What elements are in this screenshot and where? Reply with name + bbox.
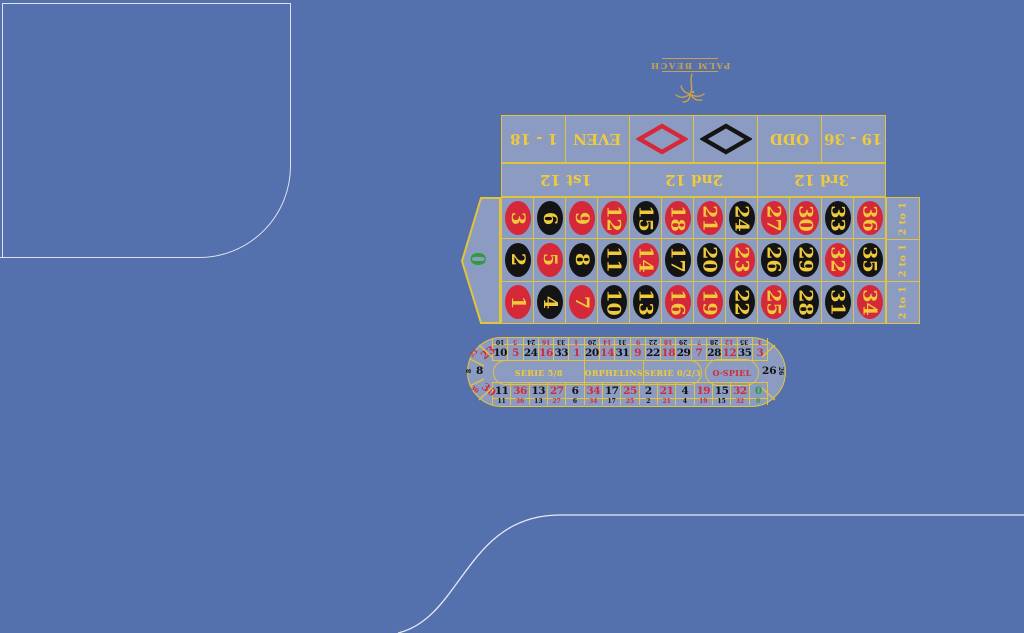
- tiny-number-13: 13: [534, 399, 542, 405]
- bet-2nd-12-label: 2nd 12: [665, 171, 723, 189]
- black-diamond-icon: [700, 123, 752, 155]
- racetrack-cell-14[interactable]: 1414: [600, 338, 615, 361]
- number-cell-30[interactable]: 30: [789, 197, 822, 239]
- number-cell-14[interactable]: 14: [629, 238, 662, 281]
- bet-red[interactable]: [629, 115, 694, 163]
- racetrack-tiny-10: 10: [493, 338, 507, 345]
- racetrack-number-27: 27: [548, 383, 565, 398]
- outside-bets-row: 1 - 18 EVEN ODD 19 - 36: [501, 115, 886, 163]
- red-oval-5: 5: [537, 243, 563, 277]
- number-cell-27[interactable]: 27: [757, 197, 790, 239]
- black-oval-22: 22: [729, 285, 755, 319]
- number-cell-23[interactable]: 23: [725, 238, 758, 281]
- table-edge-line: [0, 257, 3, 258]
- section-o-spiel[interactable]: O·SPIEL: [705, 359, 759, 386]
- number-1: 1: [508, 296, 527, 309]
- racetrack-tiny-17: 17: [603, 398, 620, 405]
- red-oval-36: 36: [857, 201, 883, 235]
- racetrack-cell-27[interactable]: 2727: [548, 382, 566, 405]
- bet-1-18[interactable]: 1 - 18: [501, 115, 566, 163]
- tiny-number-20: 20: [588, 338, 596, 344]
- tiny-number-10: 10: [496, 338, 504, 344]
- black-oval-11: 11: [601, 243, 627, 277]
- racetrack-tiny-26: 26: [777, 367, 783, 375]
- number-26: 26: [764, 247, 783, 273]
- racetrack-tiny-6: 6: [566, 398, 583, 405]
- casino-logo: PALM BEACH: [648, 57, 732, 115]
- racetrack-number-2: 2: [640, 383, 657, 398]
- number-cell-6[interactable]: 6: [533, 197, 566, 239]
- tiny-number-7: 7: [697, 338, 701, 344]
- tiny-number-11: 11: [497, 399, 505, 405]
- racetrack-tiny-25: 25: [621, 398, 638, 405]
- bet-1-18-label: 1 - 18: [510, 130, 558, 148]
- section-serie-0-2-3[interactable]: SERIE 0/2/3: [643, 361, 701, 384]
- number-cell-31[interactable]: 31: [821, 281, 854, 324]
- racetrack-tiny-36: 36: [511, 398, 528, 405]
- racetrack-number-8[interactable]: 8: [476, 366, 483, 377]
- racetrack-cell-19[interactable]: 1919: [695, 382, 713, 405]
- racetrack-number-5: 5: [508, 345, 522, 360]
- racetrack-tiny-16: 16: [539, 338, 553, 345]
- number-cell-35[interactable]: 35: [853, 238, 886, 281]
- racetrack-number-0: 0: [750, 383, 767, 398]
- racetrack-tiny-20: 20: [585, 338, 599, 345]
- bet-19-36[interactable]: 19 - 36: [821, 115, 886, 163]
- zero-number: 0: [468, 252, 488, 266]
- black-oval-20: 20: [697, 243, 723, 277]
- bet-1st-12-label: 1st 12: [540, 171, 592, 189]
- section-serie-5-8-label: SERIE 5/8: [515, 368, 563, 378]
- racetrack-cell-21[interactable]: 2121: [658, 382, 676, 405]
- black-oval-26: 26: [761, 243, 787, 277]
- red-diamond-icon: [636, 123, 688, 155]
- racetrack-number-26[interactable]: 26: [762, 366, 777, 377]
- racetrack-tiny-3: 3: [753, 338, 767, 345]
- bet-2nd-12[interactable]: 2nd 12: [629, 163, 758, 197]
- number-32: 32: [828, 247, 847, 273]
- number-6: 6: [540, 212, 559, 225]
- number-cell-22[interactable]: 22: [725, 281, 758, 324]
- racetrack-number-20: 20: [585, 345, 599, 360]
- number-22: 22: [732, 289, 751, 315]
- racetrack: 1010552424161633331120201414313199222218…: [467, 337, 786, 407]
- tiny-number-9: 9: [636, 338, 640, 344]
- column-bet-label: 2 to 1: [898, 202, 909, 236]
- racetrack-number-6: 6: [566, 383, 583, 398]
- racetrack-tiny-9: 9: [631, 338, 645, 345]
- racetrack-tiny-19: 19: [695, 398, 712, 405]
- racetrack-tiny-22: 22: [646, 338, 660, 345]
- number-5: 5: [540, 253, 559, 266]
- column-bet-top[interactable]: 2 to 1: [886, 197, 920, 240]
- racetrack-number-29: 29: [676, 345, 690, 360]
- racetrack-cell-17[interactable]: 1717: [603, 382, 621, 405]
- racetrack-tiny-12: 12: [722, 338, 736, 345]
- tiny-number-18: 18: [664, 338, 672, 344]
- logo-rule-bottom: [662, 58, 718, 59]
- racetrack-cell-9[interactable]: 99: [631, 338, 646, 361]
- bet-even[interactable]: EVEN: [565, 115, 630, 163]
- tiny-number-19: 19: [699, 399, 707, 405]
- racetrack-cell-0[interactable]: 00: [750, 382, 768, 405]
- racetrack-tiny-34: 34: [585, 398, 602, 405]
- black-oval-33: 33: [825, 201, 851, 235]
- number-row-1: 258111417202326293235: [501, 239, 886, 281]
- racetrack-cell-29[interactable]: 2929: [676, 338, 691, 361]
- racetrack-number-12: 12: [722, 345, 736, 360]
- number-cell-19[interactable]: 19: [693, 281, 726, 324]
- red-oval-34: 34: [857, 285, 883, 319]
- racetrack-number-16: 16: [539, 345, 553, 360]
- black-oval-8: 8: [569, 243, 595, 277]
- number-21: 21: [700, 205, 719, 231]
- racetrack-cell-5[interactable]: 55: [508, 338, 523, 361]
- black-oval-29: 29: [793, 243, 819, 277]
- number-36: 36: [860, 205, 879, 231]
- tiny-number-25: 25: [626, 399, 634, 405]
- number-cell-29[interactable]: 29: [789, 238, 822, 281]
- number-13: 13: [636, 289, 655, 315]
- black-oval-6: 6: [537, 201, 563, 235]
- black-oval-4: 4: [537, 285, 563, 319]
- racetrack-cell-31[interactable]: 3131: [615, 338, 630, 361]
- racetrack-number-4: 4: [676, 383, 693, 398]
- tiny-number-33: 33: [557, 338, 565, 344]
- tiny-number-4: 4: [683, 399, 687, 405]
- tiny-number-28: 28: [710, 338, 718, 344]
- number-cell-10[interactable]: 10: [597, 281, 630, 324]
- number-15: 15: [636, 205, 655, 231]
- tiny-number-21: 21: [662, 399, 670, 405]
- tiny-number-16: 16: [542, 338, 550, 344]
- tiny-number-35: 35: [740, 338, 748, 344]
- number-cell-15[interactable]: 15: [629, 197, 662, 239]
- number-30: 30: [796, 205, 815, 231]
- number-cell-20[interactable]: 20: [693, 238, 726, 281]
- racetrack-tiny-7: 7: [692, 338, 706, 345]
- red-oval-27: 27: [761, 201, 787, 235]
- racetrack-number-19: 19: [695, 383, 712, 398]
- racetrack-cell-18[interactable]: 1818: [661, 338, 676, 361]
- number-cell-33[interactable]: 33: [821, 197, 854, 239]
- number-cell-26[interactable]: 26: [757, 238, 790, 281]
- racetrack-tiny-4: 4: [676, 398, 693, 405]
- number-cell-25[interactable]: 25: [757, 281, 790, 324]
- red-oval-30: 30: [793, 201, 819, 235]
- tiny-number-34: 34: [589, 399, 597, 405]
- racetrack-tiny-27: 27: [548, 398, 565, 405]
- racetrack-number-17: 17: [603, 383, 620, 398]
- racetrack-tiny-14: 14: [600, 338, 614, 345]
- casino-logo-flipped: PALM BEACH: [648, 57, 732, 115]
- racetrack-number-31: 31: [615, 345, 629, 360]
- section-orphelins-label: ORPHELINS: [585, 368, 643, 378]
- number-cell-1[interactable]: 1: [501, 281, 534, 324]
- logo-wordmark: PALM BEACH: [650, 60, 731, 70]
- bet-3rd-12-label: 3rd 12: [794, 171, 849, 189]
- black-oval-28: 28: [793, 285, 819, 319]
- red-oval-3: 3: [505, 201, 531, 235]
- racetrack-cell-3[interactable]: 33: [753, 338, 768, 361]
- number-cell-11[interactable]: 11: [597, 238, 630, 281]
- black-oval-24: 24: [729, 201, 755, 235]
- black-oval-35: 35: [857, 243, 883, 277]
- racetrack-tiny-18: 18: [661, 338, 675, 345]
- bet-black[interactable]: [693, 115, 758, 163]
- racetrack-number-18: 18: [661, 345, 675, 360]
- racetrack-number-1: 1: [569, 345, 583, 360]
- tiny-number-12: 12: [725, 338, 733, 344]
- section-orphelins[interactable]: ORPHELINS: [584, 361, 643, 384]
- column-bet-label: 2 to 1: [898, 244, 909, 278]
- racetrack-number-33: 33: [554, 345, 568, 360]
- number-9: 9: [572, 212, 591, 225]
- tiny-number-29: 29: [679, 338, 687, 344]
- tiny-number-2: 2: [646, 399, 650, 405]
- tiny-number-1: 1: [574, 338, 578, 344]
- racetrack-number-21: 21: [658, 383, 675, 398]
- black-oval-17: 17: [665, 243, 691, 277]
- tiny-number-15: 15: [717, 399, 725, 405]
- racetrack-tiny-1: 1: [569, 338, 583, 345]
- racetrack-cell-12[interactable]: 1212: [722, 338, 737, 361]
- number-3: 3: [508, 212, 527, 225]
- racetrack-tiny-35: 35: [738, 338, 752, 345]
- red-oval-1: 1: [505, 285, 531, 319]
- number-24: 24: [732, 205, 751, 231]
- number-23: 23: [732, 247, 751, 273]
- column-bet-middle[interactable]: 2 to 1: [886, 239, 920, 282]
- racetrack-cell-35[interactable]: 3535: [738, 338, 753, 361]
- racetrack-number-9: 9: [631, 345, 645, 360]
- number-cell-17[interactable]: 17: [661, 238, 694, 281]
- number-cell-3[interactable]: 3: [501, 197, 534, 239]
- racetrack-tiny-11: 11: [493, 398, 510, 405]
- racetrack-tiny-8: 8: [467, 369, 473, 373]
- red-oval-18: 18: [665, 201, 691, 235]
- racetrack-tiny-2: 2: [640, 398, 657, 405]
- number-cell-12[interactable]: 12: [597, 197, 630, 239]
- racetrack-cell-7[interactable]: 77: [692, 338, 707, 361]
- number-cell-16[interactable]: 16: [661, 281, 694, 324]
- red-oval-12: 12: [601, 201, 627, 235]
- number-16: 16: [668, 289, 687, 315]
- tiny-number-14: 14: [603, 338, 611, 344]
- logo-rule-top: [662, 71, 718, 72]
- tiny-number-5: 5: [513, 338, 517, 344]
- red-oval-16: 16: [665, 285, 691, 319]
- number-25: 25: [764, 289, 783, 315]
- racetrack-number-36: 36: [511, 383, 528, 398]
- black-oval-15: 15: [633, 201, 659, 235]
- tiny-number-0: 0: [756, 399, 760, 405]
- bet-3rd-12[interactable]: 3rd 12: [757, 163, 886, 197]
- number-8: 8: [572, 253, 591, 266]
- racetrack-cell-24[interactable]: 2424: [524, 338, 539, 361]
- number-cell-28[interactable]: 28: [789, 281, 822, 324]
- bet-odd[interactable]: ODD: [757, 115, 822, 163]
- black-oval-2: 2: [505, 243, 531, 277]
- racetrack-tiny-15: 15: [713, 398, 730, 405]
- tiny-number-32: 32: [736, 399, 744, 405]
- number-cell-32[interactable]: 32: [821, 238, 854, 281]
- racetrack-cell-2[interactable]: 22: [640, 382, 658, 405]
- racetrack-tiny-28: 28: [707, 338, 721, 345]
- number-10: 10: [604, 289, 623, 315]
- bet-1st-12[interactable]: 1st 12: [501, 163, 630, 197]
- number-11: 11: [604, 247, 623, 273]
- black-oval-10: 10: [601, 285, 627, 319]
- tiny-number-22: 22: [649, 338, 657, 344]
- racetrack-tiny-29: 29: [676, 338, 690, 345]
- number-33: 33: [828, 205, 847, 231]
- racetrack-tiny-32: 32: [731, 398, 748, 405]
- bet-19-36-label: 19 - 36: [824, 130, 882, 148]
- number-cell-2[interactable]: 2: [501, 238, 534, 281]
- racetrack-number-24: 24: [524, 345, 538, 360]
- racetrack-top-strip: 1010552424161633331120201414313199222218…: [492, 338, 768, 361]
- racetrack-tiny-33: 33: [554, 338, 568, 345]
- racetrack-center-sections: SERIE 5/8 ORPHELINS SERIE 0/2/3: [493, 360, 702, 385]
- racetrack-cell-25[interactable]: 2525: [621, 382, 639, 405]
- number-2: 2: [508, 253, 527, 266]
- racetrack-number-7: 7: [692, 345, 706, 360]
- number-cell-21[interactable]: 21: [693, 197, 726, 239]
- racetrack-cell-20[interactable]: 2020: [585, 338, 600, 361]
- number-4: 4: [540, 296, 559, 309]
- racetrack-tiny-5: 5: [508, 338, 522, 345]
- red-oval-25: 25: [761, 285, 787, 319]
- red-oval-23: 23: [729, 243, 755, 277]
- racetrack-cell-4[interactable]: 44: [676, 382, 694, 405]
- number-row-2: 147101316192225283134: [501, 282, 886, 324]
- racetrack-tiny-23: 23: [469, 349, 479, 359]
- racetrack-cell-16[interactable]: 1616: [539, 338, 554, 361]
- number-14: 14: [636, 247, 655, 273]
- racetrack-tiny-31: 31: [615, 338, 629, 345]
- tiny-number-27: 27: [552, 399, 560, 405]
- tiny-number-6: 6: [573, 399, 577, 405]
- number-27: 27: [764, 205, 783, 231]
- racetrack-cell-33[interactable]: 3333: [554, 338, 569, 361]
- racetrack-tiny-0: 0: [750, 398, 767, 405]
- number-cell-5[interactable]: 5: [533, 238, 566, 281]
- red-oval-32: 32: [825, 243, 851, 277]
- red-oval-19: 19: [697, 285, 723, 319]
- number-12: 12: [604, 205, 623, 231]
- number-cell-7[interactable]: 7: [565, 281, 598, 324]
- table-edge-rounded-rect: [2, 3, 291, 258]
- racetrack-cell-34[interactable]: 3434: [585, 382, 603, 405]
- racetrack-tiny-21: 21: [658, 398, 675, 405]
- racetrack-number-3: 3: [753, 345, 767, 360]
- racetrack-cell-36[interactable]: 3636: [511, 382, 529, 405]
- racetrack-number-28: 28: [707, 345, 721, 360]
- number-cell-4[interactable]: 4: [533, 281, 566, 324]
- number-cell-36[interactable]: 36: [853, 197, 886, 239]
- racetrack-number-25: 25: [621, 383, 638, 398]
- number-cell-8[interactable]: 8: [565, 238, 598, 281]
- racetrack-cell-13[interactable]: 1313: [530, 382, 548, 405]
- number-row-0: 369121518212427303336: [501, 197, 886, 239]
- number-cell-9[interactable]: 9: [565, 197, 598, 239]
- tiny-number-3: 3: [758, 338, 762, 344]
- tiny-number-36: 36: [516, 399, 524, 405]
- racetrack-number-13: 13: [530, 383, 547, 398]
- bet-odd-label: ODD: [770, 130, 809, 148]
- racetrack-cell-6[interactable]: 66: [566, 382, 584, 405]
- racetrack-cell-22[interactable]: 2222: [646, 338, 661, 361]
- racetrack-tiny-13: 13: [530, 398, 547, 405]
- section-o-spiel-label: O·SPIEL: [712, 368, 751, 378]
- column-bets: 2 to 1 2 to 1 2 to 1: [886, 197, 920, 324]
- dozens-row: 1st 12 2nd 12 3rd 12: [501, 163, 886, 197]
- section-serie-0-2-3-label: SERIE 0/2/3: [644, 368, 701, 378]
- number-cell-13[interactable]: 13: [629, 281, 662, 324]
- black-oval-31: 31: [825, 285, 851, 319]
- number-17: 17: [668, 247, 687, 273]
- section-serie-5-8[interactable]: SERIE 5/8: [494, 361, 584, 384]
- number-28: 28: [796, 289, 815, 315]
- roulette-layout: 1 - 18 EVEN ODD 19 - 36 1st 12: [461, 115, 920, 325]
- number-29: 29: [796, 247, 815, 273]
- number-19: 19: [700, 289, 719, 315]
- tiny-number-17: 17: [607, 399, 615, 405]
- red-oval-7: 7: [569, 285, 595, 319]
- tiny-number-31: 31: [618, 338, 626, 344]
- number-31: 31: [828, 289, 847, 315]
- column-bet-bottom[interactable]: 2 to 1: [886, 281, 920, 324]
- racetrack-tiny-30: 30: [469, 385, 479, 395]
- racetrack-number-34: 34: [585, 383, 602, 398]
- number-35: 35: [860, 247, 879, 273]
- number-7: 7: [572, 296, 591, 309]
- red-oval-14: 14: [633, 243, 659, 277]
- black-oval-13: 13: [633, 285, 659, 319]
- number-cell-34[interactable]: 34: [853, 281, 886, 324]
- racetrack-cell-1[interactable]: 11: [569, 338, 584, 361]
- number-20: 20: [700, 247, 719, 273]
- zero-bet[interactable]: 0: [461, 197, 501, 324]
- number-cell-24[interactable]: 24: [725, 197, 758, 239]
- number-18: 18: [668, 205, 687, 231]
- number-34: 34: [860, 289, 879, 315]
- column-bet-label: 2 to 1: [898, 286, 909, 320]
- racetrack-number-14: 14: [600, 345, 614, 360]
- racetrack-cell-28[interactable]: 2828: [707, 338, 722, 361]
- red-oval-9: 9: [569, 201, 595, 235]
- tiny-number-24: 24: [527, 338, 535, 344]
- racetrack-number-35: 35: [738, 345, 752, 360]
- number-cell-18[interactable]: 18: [661, 197, 694, 239]
- bet-even-label: EVEN: [573, 130, 621, 148]
- number-grid: 3691215182124273033362581114172023262932…: [501, 197, 886, 324]
- red-oval-21: 21: [697, 201, 723, 235]
- racetrack-tiny-24: 24: [524, 338, 538, 345]
- racetrack-number-22: 22: [646, 345, 660, 360]
- palm-tree-icon: [673, 73, 707, 103]
